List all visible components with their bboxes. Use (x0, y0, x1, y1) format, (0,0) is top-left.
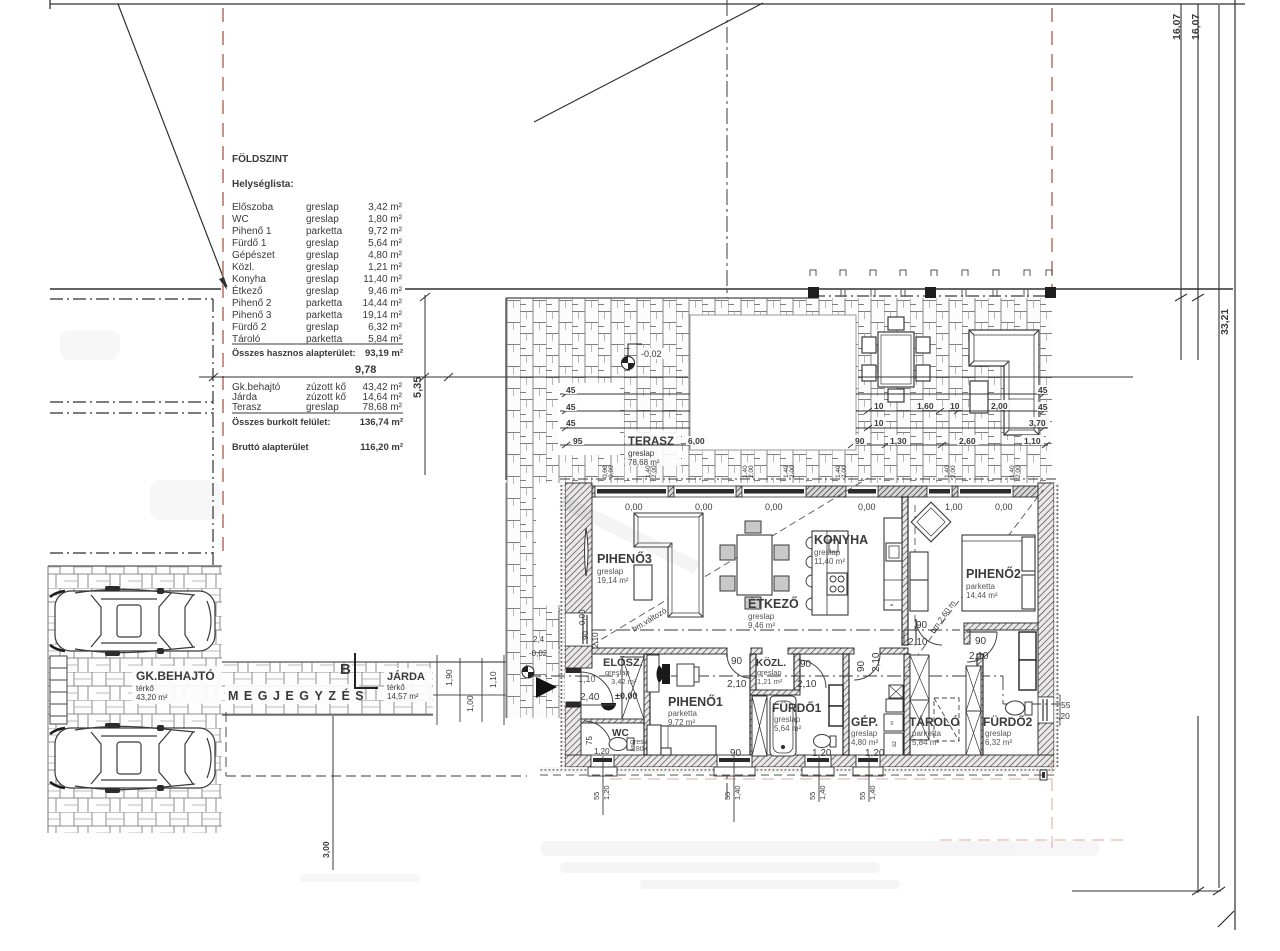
svg-text:greslap: greslap (306, 262, 339, 273)
svg-text:parketta: parketta (306, 334, 343, 345)
svg-text:5,35: 5,35 (412, 377, 424, 398)
svg-text:Pihenő 3: Pihenő 3 (232, 310, 272, 321)
svg-text:19,14 m²: 19,14 m² (363, 310, 403, 321)
svg-text:2,40: 2,40 (580, 692, 600, 703)
svg-text:PIHENŐ3: PIHENŐ3 (597, 551, 652, 566)
svg-text:43,20 m²: 43,20 m² (136, 693, 168, 702)
svg-text:greslap: greslap (306, 202, 339, 213)
svg-text:parketta: parketta (912, 729, 941, 738)
svg-text:0,00: 0,00 (695, 502, 713, 512)
svg-text:2,00: 2,00 (789, 465, 796, 478)
svg-text:greslap: greslap (306, 250, 339, 261)
svg-text:FÜRDŐ1: FÜRDŐ1 (772, 700, 822, 715)
svg-text:MEGJEGYZÉS: MEGJEGYZÉS (228, 688, 369, 703)
svg-text:75: 75 (585, 736, 594, 745)
svg-text:Tároló: Tároló (232, 334, 261, 345)
svg-text:greslap: greslap (306, 322, 339, 333)
svg-text:5,64 m²: 5,64 m² (368, 238, 403, 249)
svg-text:parketta: parketta (306, 310, 343, 321)
svg-text:9,72 m²: 9,72 m² (368, 226, 403, 237)
svg-text:parketta: parketta (966, 582, 995, 591)
svg-text:1,40: 1,40 (868, 785, 877, 800)
svg-text:55: 55 (858, 792, 867, 800)
svg-text:1,80 m²: 1,80 m² (368, 214, 403, 225)
svg-text:térkő: térkő (136, 684, 154, 693)
svg-text:55: 55 (723, 792, 732, 800)
svg-text:5,84 m²: 5,84 m² (912, 738, 939, 747)
svg-text:116,20 m²: 116,20 m² (360, 442, 403, 453)
svg-text:parketta: parketta (306, 298, 343, 309)
svg-text:GK.BEHAJTÓ: GK.BEHAJTÓ (136, 668, 215, 683)
svg-text:1,20: 1,20 (602, 785, 611, 800)
svg-text:greslap: greslap (985, 729, 1012, 738)
svg-text:PIHENŐ2: PIHENŐ2 (966, 566, 1021, 581)
svg-text:5,84 m²: 5,84 m² (368, 334, 403, 345)
svg-text:greslap: greslap (774, 715, 801, 724)
svg-text:1,00: 1,00 (465, 695, 475, 712)
svg-text:Gépészet: Gépészet (232, 250, 275, 261)
svg-text:45: 45 (566, 385, 576, 395)
svg-text:136,74 m²: 136,74 m² (360, 417, 403, 428)
svg-text:0,00: 0,00 (995, 502, 1013, 512)
svg-text:11,40 m²: 11,40 m² (814, 557, 845, 566)
svg-text:3,42 m²: 3,42 m² (611, 677, 637, 686)
svg-text:greslap: greslap (306, 214, 339, 225)
svg-text:10: 10 (950, 401, 960, 411)
svg-text:Közl.: Közl. (232, 262, 254, 273)
svg-text:55: 55 (808, 792, 817, 800)
svg-text:90: 90 (975, 636, 987, 647)
svg-text:1,20: 1,20 (865, 748, 885, 759)
svg-text:sz: sz (892, 741, 898, 747)
svg-text:greslap: greslap (851, 729, 878, 738)
svg-text:2,00: 2,00 (841, 465, 848, 478)
svg-text:2,00: 2,00 (991, 401, 1008, 411)
svg-text:1,21 m²: 1,21 m² (757, 677, 783, 686)
svg-text:5,64 m²: 5,64 m² (774, 724, 801, 733)
svg-text:3,00: 3,00 (321, 841, 331, 858)
svg-text:±0,00: ±0,00 (615, 691, 637, 701)
svg-text:0,00: 0,00 (578, 609, 587, 625)
svg-text:90: 90 (855, 436, 865, 446)
svg-text:1,90: 1,90 (444, 669, 454, 686)
svg-text:16,07: 16,07 (1190, 14, 1202, 40)
svg-text:2,10: 2,10 (871, 652, 882, 672)
svg-text:90: 90 (730, 748, 742, 759)
svg-text:2,00: 2,00 (950, 465, 957, 478)
svg-text:55: 55 (592, 792, 601, 800)
svg-text:Bruttó alapterület: Bruttó alapterület (232, 442, 309, 452)
svg-text:14,57 m²: 14,57 m² (387, 692, 419, 701)
svg-text:2,10: 2,10 (969, 651, 989, 662)
svg-text:-0,02: -0,02 (641, 349, 662, 359)
svg-text:2,10: 2,10 (797, 679, 817, 690)
svg-text:Fürdő 1: Fürdő 1 (232, 238, 267, 249)
svg-text:9,46 m²: 9,46 m² (748, 621, 775, 630)
svg-text:Konyha: Konyha (232, 274, 266, 285)
svg-text:16,07: 16,07 (1171, 14, 1183, 40)
svg-text:0,90: 0,90 (608, 465, 615, 478)
svg-text:Összes hasznos alapterület:: Összes hasznos alapterület: (232, 348, 356, 358)
svg-text:3,42 m²: 3,42 m² (368, 202, 403, 213)
svg-text:90: 90 (916, 620, 928, 631)
svg-text:Pihenő 2: Pihenő 2 (232, 298, 272, 309)
svg-text:WC: WC (612, 728, 629, 739)
svg-text:greslap: greslap (597, 567, 624, 576)
svg-text:WC: WC (232, 214, 249, 225)
svg-text:1,20: 1,20 (594, 747, 610, 756)
svg-text:1,21 m²: 1,21 m² (368, 262, 403, 273)
svg-text:parketta: parketta (668, 709, 697, 718)
svg-text:,20: ,20 (1058, 711, 1070, 721)
svg-text:1,40: 1,40 (818, 785, 827, 800)
svg-text:93,19 m²: 93,19 m² (365, 348, 403, 359)
svg-text:2,00: 2,00 (1015, 465, 1022, 478)
svg-text:10: 10 (874, 401, 884, 411)
svg-text:FÜRDŐ2: FÜRDŐ2 (983, 714, 1033, 729)
svg-text:95: 95 (573, 436, 583, 446)
svg-text:KONYHA: KONYHA (814, 533, 868, 547)
svg-text:10: 10 (874, 418, 884, 428)
svg-text:0,00: 0,00 (765, 502, 783, 512)
svg-text:45: 45 (1038, 402, 1048, 412)
svg-text:2,00: 2,00 (651, 465, 658, 478)
svg-text:greslap: greslap (628, 449, 655, 458)
svg-text:FÖLDSZINT: FÖLDSZINT (232, 152, 288, 165)
svg-text:90: 90 (856, 660, 867, 672)
svg-text:3,70: 3,70 (1029, 418, 1046, 428)
svg-text:9,78: 9,78 (355, 364, 376, 376)
svg-text:90: 90 (731, 656, 743, 667)
svg-text:Helységlista:: Helységlista: (232, 179, 294, 190)
svg-text:térkő: térkő (387, 683, 405, 692)
svg-text:1,20: 1,20 (812, 748, 832, 759)
svg-text:14,44 m²: 14,44 m² (966, 591, 998, 600)
svg-text:2,10: 2,10 (591, 632, 600, 648)
svg-text:PIHENŐ1: PIHENŐ1 (668, 694, 723, 709)
svg-text:19,14 m²: 19,14 m² (597, 576, 629, 585)
svg-text:Terasz: Terasz (232, 402, 261, 413)
svg-text:6,32 m²: 6,32 m² (368, 322, 403, 333)
svg-text:1,10: 1,10 (578, 674, 596, 684)
svg-text:JÁRDA: JÁRDA (387, 670, 425, 683)
svg-text:90: 90 (581, 631, 590, 640)
svg-text:78,68 m²: 78,68 m² (363, 402, 403, 413)
svg-text:ÉTKEZŐ: ÉTKEZŐ (748, 596, 799, 611)
svg-text:1,10: 1,10 (1024, 436, 1041, 446)
svg-text:14,44 m²: 14,44 m² (363, 298, 403, 309)
svg-text:greslap: greslap (605, 668, 630, 677)
svg-text:Étkező: Étkező (232, 284, 263, 297)
svg-text:11,40 m²: 11,40 m² (363, 274, 402, 285)
svg-text:2,10: 2,10 (727, 679, 747, 690)
svg-text:9,46 m²: 9,46 m² (368, 286, 403, 297)
svg-text:1,00: 1,00 (945, 502, 963, 512)
svg-text:-0,02: -0,02 (529, 649, 548, 658)
svg-text:greslap: greslap (306, 286, 339, 297)
svg-text:parketta: parketta (306, 226, 343, 237)
svg-text:Fürdő 2: Fürdő 2 (232, 322, 267, 333)
svg-text:greslap: greslap (306, 238, 339, 249)
svg-text:Előszoba: Előszoba (232, 202, 274, 213)
svg-text:55: 55 (1061, 700, 1071, 710)
svg-text:45: 45 (566, 402, 576, 412)
svg-text:2,00: 2,00 (748, 465, 755, 478)
svg-text:Összes burkolt felület:: Összes burkolt felület: (232, 417, 331, 427)
svg-text:GÉP.: GÉP. (851, 714, 878, 729)
svg-text:2,10: 2,10 (908, 637, 928, 648)
svg-text:2,4: 2,4 (533, 635, 545, 644)
svg-text:≡: ≡ (890, 721, 894, 727)
svg-text:Pihenő 1: Pihenő 1 (232, 226, 272, 237)
svg-text:6,00: 6,00 (688, 436, 705, 446)
svg-text:4,80 m²: 4,80 m² (368, 250, 403, 261)
svg-text:1,30: 1,30 (890, 436, 907, 446)
svg-text:greslap: greslap (748, 612, 775, 621)
svg-text:6,32 m²: 6,32 m² (985, 738, 1012, 747)
svg-text:1,10: 1,10 (488, 671, 498, 688)
svg-text:45: 45 (1038, 385, 1048, 395)
svg-text:2,60: 2,60 (959, 436, 976, 446)
svg-text:1,60: 1,60 (917, 401, 934, 411)
svg-text:greslap: greslap (814, 548, 841, 557)
svg-text:greslap: greslap (757, 668, 782, 677)
svg-text:B: B (340, 661, 351, 678)
svg-text:TÁROLÓ: TÁROLÓ (909, 714, 960, 729)
svg-text:TERASZ: TERASZ (628, 436, 674, 448)
svg-text:0,00: 0,00 (625, 502, 643, 512)
svg-text:greslap: greslap (306, 402, 339, 413)
svg-text:1,40: 1,40 (733, 785, 742, 800)
svg-text:90: 90 (800, 659, 812, 670)
svg-text:45: 45 (566, 418, 576, 428)
svg-text:4,80 m²: 4,80 m² (851, 738, 878, 747)
svg-text:=: = (890, 603, 894, 609)
svg-text:33,21: 33,21 (1219, 309, 1231, 335)
svg-text:0,00: 0,00 (858, 502, 876, 512)
svg-text:greslap: greslap (306, 274, 339, 285)
